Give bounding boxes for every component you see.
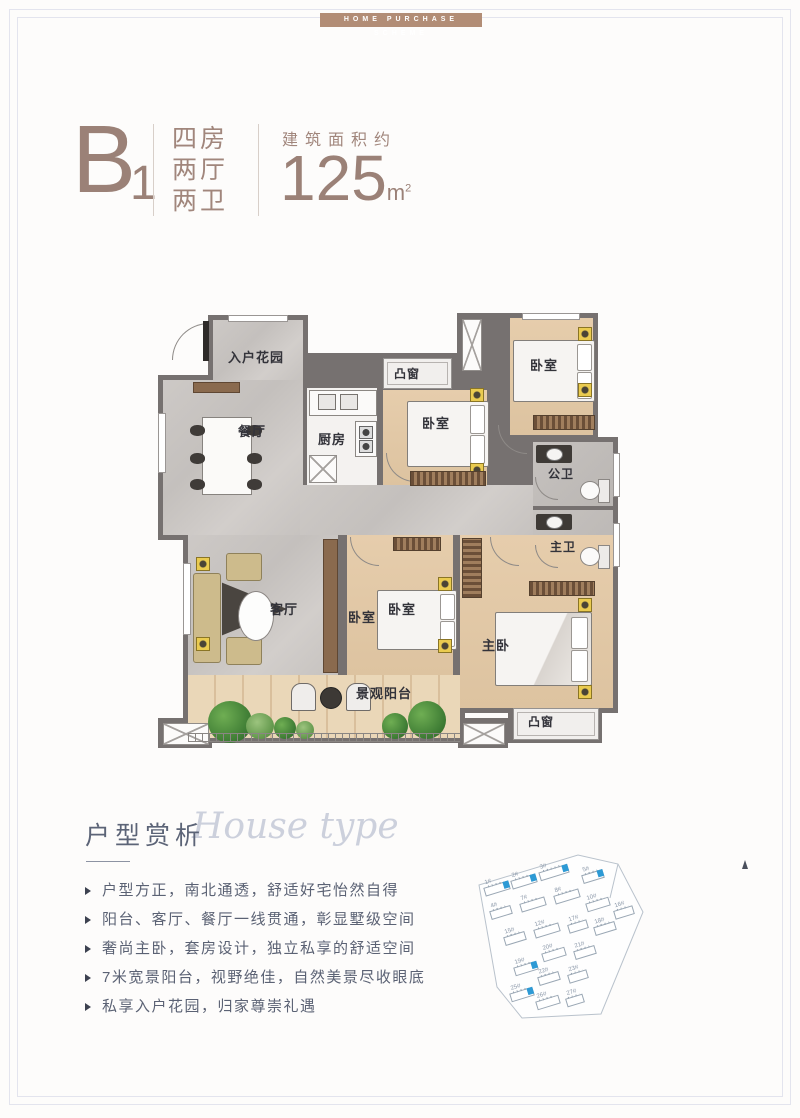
label-dining: 餐厅 (238, 421, 266, 440)
bath-sink (546, 516, 563, 529)
kitchen-cabinet (309, 455, 337, 483)
bullet-item: 私享入户花园，归家尊崇礼遇 (85, 996, 425, 1025)
label-balcony: 景观阳台 (356, 683, 412, 702)
unit-layout-summary: 四房 两厅 两卫 (172, 124, 228, 217)
bullet-arrow-icon (85, 887, 91, 895)
pillow (577, 344, 592, 371)
siteplan-building: 1# (483, 880, 510, 896)
unit-code: B (72, 112, 136, 208)
siteplan-building: 20# (541, 947, 567, 963)
dining-chair (190, 425, 205, 436)
stove-burner (359, 426, 373, 439)
ac-platform-top (462, 319, 482, 371)
planter-pot (320, 687, 342, 709)
bay-window-south (513, 708, 599, 740)
siteplan-building: 19# (513, 961, 539, 977)
divider (153, 124, 154, 216)
siteplan-buildings: 1#2#3#5#4#7#8#10#16#15#12#17#18#20#21#19… (470, 850, 770, 1050)
siteplan-building: 10# (585, 897, 611, 913)
analysis-title-en: House type (192, 806, 399, 847)
wardrobe (533, 415, 595, 430)
siteplan-building: 17# (567, 919, 589, 933)
siteplan-building: 12# (533, 922, 560, 938)
siteplan-building: 22# (537, 971, 561, 986)
bullet-arrow-icon (85, 945, 91, 953)
top-banner: HOME PURCHASE SCHEME (320, 13, 482, 27)
dining-chair (190, 479, 205, 490)
tv-cabinet (323, 539, 338, 673)
toilet (580, 547, 600, 566)
label-bay-north: 凸窗 (394, 365, 420, 382)
siteplan-building: 21# (573, 945, 597, 960)
label-living: 客厅 (270, 599, 298, 618)
nightstand (578, 598, 592, 612)
nightstand (578, 685, 592, 699)
area-unit-m: m (387, 180, 405, 205)
label-bay-south: 凸窗 (528, 713, 554, 730)
floor-plan: 入户花园 餐厅 厨房 凸窗 卧室 卧室 公卫 主卫 客厅 卧室 卧室 主卧 景观… (150, 295, 650, 765)
ac-platform-bottom-right (463, 723, 505, 745)
bullet-text: 私享入户花园，归家尊崇礼遇 (102, 998, 317, 1015)
pillow (470, 405, 485, 434)
toilet (580, 481, 600, 500)
siteplan-building: 16# (613, 905, 635, 919)
bullet-text: 奢尚主卧，套房设计，独立私享的舒适空间 (102, 940, 416, 957)
area-value: 125m2 (280, 146, 411, 210)
site-plan: 1#2#3#5#4#7#8#10#16#15#12#17#18#20#21#19… (470, 850, 770, 1050)
siteplan-building: 23# (567, 969, 589, 983)
pillow (571, 617, 588, 649)
pillow (440, 594, 455, 620)
siteplan-building: 8# (553, 888, 580, 904)
dining-chair (190, 453, 205, 464)
title-underline (86, 861, 130, 862)
siteplan-building: 7# (519, 896, 546, 912)
bullet-item: 奢尚主卧，套房设计，独立私享的舒适空间 (85, 938, 425, 967)
layout-line-baths: 两卫 (172, 186, 228, 217)
brochure-page: HOME PURCHASE SCHEME B 1 四房 两厅 两卫 建筑面积约 … (0, 0, 800, 1118)
coffee-table (238, 591, 274, 641)
bullet-text: 阳台、客厅、餐厅一线贯通，彰显墅级空间 (102, 911, 416, 928)
window (228, 315, 288, 322)
wardrobe (393, 537, 441, 551)
nightstand (470, 388, 484, 402)
area-number: 125 (280, 142, 387, 214)
entry-door-leaf (203, 321, 209, 361)
bullet-item: 户型方正，南北通透，舒适好宅怡然自得 (85, 880, 425, 909)
label-bath-public: 公卫 (548, 465, 574, 482)
siteplan-building: 5# (581, 869, 605, 884)
shoe-cabinet (193, 382, 240, 393)
kitchen-sink (318, 394, 336, 410)
area-unit: m2 (387, 180, 411, 205)
planter-pot (291, 683, 316, 711)
nightstand (578, 327, 592, 341)
kitchen-sink (340, 394, 358, 410)
window (158, 413, 166, 473)
label-kitchen: 厨房 (318, 429, 346, 448)
nightstand (438, 577, 452, 591)
label-bedroom-north: 卧室 (422, 413, 450, 432)
wardrobe (410, 471, 486, 486)
window (613, 453, 620, 497)
wardrobe (529, 581, 595, 596)
area-unit-sup: 2 (405, 183, 411, 195)
label-master-bedroom: 主卧 (482, 635, 510, 654)
analysis-bullet-list: 户型方正，南北通透，舒适好宅怡然自得 阳台、客厅、餐厅一线贯通，彰显墅级空间 奢… (85, 880, 425, 1025)
label-entry-garden: 入户花园 (228, 347, 284, 366)
bullet-text: 户型方正，南北通透，舒适好宅怡然自得 (102, 882, 399, 899)
floor-lamp (196, 637, 210, 651)
divider (258, 124, 259, 216)
layout-line-rooms: 四房 (172, 124, 228, 155)
label-bath-master: 主卫 (550, 538, 576, 555)
wardrobe (462, 538, 482, 598)
analysis-title: 户型赏析 (85, 816, 205, 852)
balcony-railing (188, 733, 460, 742)
window (613, 523, 620, 567)
pillow (470, 435, 485, 464)
bullet-arrow-icon (85, 974, 91, 982)
label-bedroom-south-b: 卧室 (388, 599, 416, 618)
nightstand (438, 639, 452, 653)
dining-chair (247, 479, 262, 490)
siteplan-building: 3# (538, 864, 569, 881)
pillow (571, 650, 588, 682)
window (522, 313, 580, 320)
floor-lamp (196, 557, 210, 571)
label-bedroom-south-a: 卧室 (348, 607, 376, 626)
bullet-arrow-icon (85, 916, 91, 924)
siteplan-building: 4# (489, 905, 513, 920)
siteplan-building: 27# (565, 994, 585, 1008)
bath-sink (546, 448, 563, 461)
stove-burner (359, 440, 373, 453)
siteplan-building: 25# (509, 987, 535, 1003)
label-bedroom-northeast: 卧室 (530, 355, 558, 374)
dining-chair (247, 453, 262, 464)
armchair (226, 637, 262, 665)
siteplan-building: 26# (535, 995, 561, 1011)
bullet-arrow-icon (85, 1003, 91, 1011)
nightstand (578, 383, 592, 397)
armchair (226, 553, 262, 581)
siteplan-building: 2# (510, 873, 537, 889)
room-hallway (300, 485, 533, 535)
window (183, 563, 191, 635)
layout-line-halls: 两厅 (172, 155, 228, 186)
bullet-text: 7米宽景阳台，视野绝佳，自然美景尽收眼底 (102, 969, 425, 986)
siteplan-building: 15# (503, 931, 527, 946)
bullet-item: 7米宽景阳台，视野绝佳，自然美景尽收眼底 (85, 967, 425, 996)
bullet-item: 阳台、客厅、餐厅一线贯通，彰显墅级空间 (85, 909, 425, 938)
siteplan-building: 18# (593, 921, 617, 936)
